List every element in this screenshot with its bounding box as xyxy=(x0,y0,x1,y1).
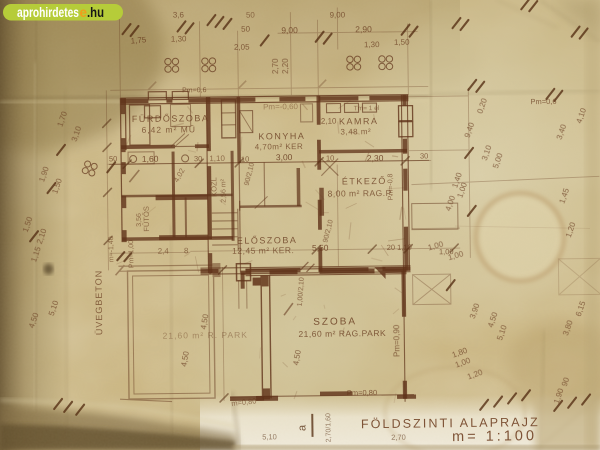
svg-text:FÜRDŐSZOBA: FÜRDŐSZOBA xyxy=(132,113,210,124)
svg-text:FŰTŐS: FŰTŐS xyxy=(142,206,151,232)
svg-text:1,10: 1,10 xyxy=(209,154,225,163)
svg-text:m=-1,40: m=-1,40 xyxy=(108,236,115,262)
svg-text:3,56: 3,56 xyxy=(136,213,143,227)
svg-text:21,60 m² R. PARK: 21,60 m² R. PARK xyxy=(163,330,248,341)
svg-text:12,45 m² KER.: 12,45 m² KER. xyxy=(232,245,294,256)
svg-text:3,48 m²: 3,48 m² xyxy=(340,127,371,136)
svg-text:aprohirdetes: aprohirdetes xyxy=(17,5,79,20)
svg-text:1,60: 1,60 xyxy=(142,154,159,164)
svg-text:21,60 m² RAG.PARK: 21,60 m² RAG.PARK xyxy=(298,328,386,339)
svg-text:2,90: 2,90 xyxy=(355,24,372,34)
svg-text:1,30: 1,30 xyxy=(364,40,380,49)
svg-text:3,6: 3,6 xyxy=(173,10,185,19)
svg-text:2,4: 2,4 xyxy=(158,247,170,256)
svg-text:Tm= 1 el: Tm= 1 el xyxy=(354,105,380,112)
svg-text:2,70: 2,70 xyxy=(391,433,406,442)
svg-text:5,50: 5,50 xyxy=(312,243,329,253)
svg-text:KONYHA: KONYHA xyxy=(258,131,305,142)
svg-text:Pm=1,00: Pm=1,00 xyxy=(128,240,135,268)
svg-text:2,30: 2,30 xyxy=(367,153,384,163)
svg-text:50: 50 xyxy=(109,154,117,163)
svg-text:2,10: 2,10 xyxy=(321,117,337,126)
svg-text:m= 1:100: m= 1:100 xyxy=(452,428,537,445)
svg-text:2,70: 2,70 xyxy=(271,58,280,74)
svg-text:50: 50 xyxy=(246,11,256,20)
svg-text:2,70/1,60: 2,70/1,60 xyxy=(325,413,332,442)
svg-text:30: 30 xyxy=(194,154,202,163)
svg-text:9,00: 9,00 xyxy=(281,25,298,35)
svg-text:2,05: 2,05 xyxy=(234,43,250,52)
svg-text:Pm=0,80: Pm=0,80 xyxy=(347,388,377,397)
svg-text:50: 50 xyxy=(241,25,251,34)
svg-text:Pm=0,6: Pm=0,6 xyxy=(530,97,556,106)
svg-text:SZOBA: SZOBA xyxy=(313,316,357,328)
svg-text:10: 10 xyxy=(241,155,249,164)
svg-text:2,20: 2,20 xyxy=(281,58,290,74)
svg-text:4,70m² KER: 4,70m² KER xyxy=(255,142,304,152)
svg-text:2,56 m²: 2,56 m² xyxy=(220,178,227,202)
svg-text:KÖZL: KÖZL xyxy=(209,177,218,197)
svg-text:8,00 m² RAG.P.: 8,00 m² RAG.P. xyxy=(328,188,394,199)
svg-text:8: 8 xyxy=(184,246,189,255)
svg-text:3,00: 3,00 xyxy=(276,152,293,162)
svg-text:KAMRA: KAMRA xyxy=(339,116,379,126)
svg-text:.hu: .hu xyxy=(87,5,104,20)
svg-text:5,10: 5,10 xyxy=(262,432,277,441)
svg-text:6,42 m² MŰ: 6,42 m² MŰ xyxy=(142,124,197,135)
svg-text:1,75: 1,75 xyxy=(130,35,147,45)
svg-text:10: 10 xyxy=(326,154,334,163)
svg-text:1,30: 1,30 xyxy=(171,34,187,43)
svg-text:9,00: 9,00 xyxy=(330,10,346,19)
svg-text:1,50: 1,50 xyxy=(394,38,410,47)
svg-text:20 1,10: 20 1,10 xyxy=(387,243,412,252)
svg-text:Pm=0,6: Pm=0,6 xyxy=(182,87,207,94)
svg-text:ÜVEGBETON: ÜVEGBETON xyxy=(93,270,104,335)
svg-text:Pm=-0,60: Pm=-0,60 xyxy=(263,102,299,111)
svg-text:Pm=0,90: Pm=0,90 xyxy=(392,324,401,357)
svg-text:ÉTKEZŐ: ÉTKEZŐ xyxy=(342,176,387,187)
svg-text:a: a xyxy=(296,424,308,431)
svg-text:30: 30 xyxy=(420,151,428,160)
